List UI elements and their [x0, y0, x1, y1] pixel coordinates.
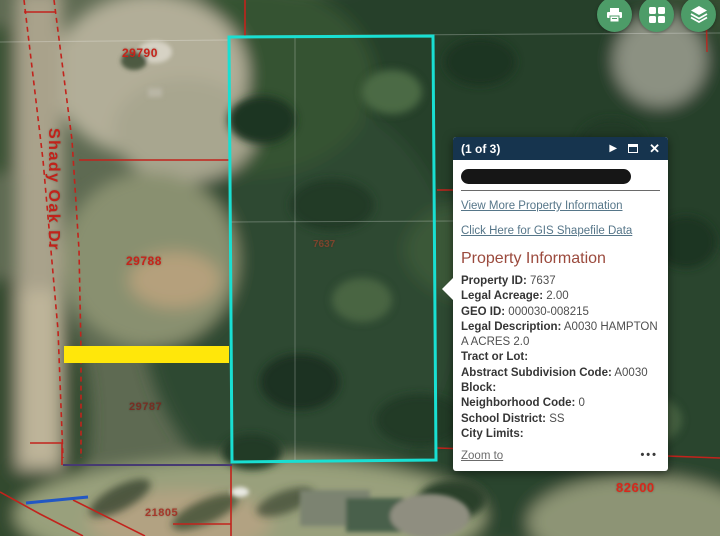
close-icon[interactable]: ✕ [649, 142, 660, 155]
property-field-row: Legal Description: A0030 HAMPTON A ACRES… [461, 320, 660, 351]
property-field-row: Neighborhood Code: 0 [461, 396, 660, 411]
property-field-row: Abstract Subdivision Code: A0030 [461, 366, 660, 381]
property-field-row: Property ID: 7637 [461, 274, 660, 289]
parcel-label: 29790 [122, 46, 158, 60]
property-fields: Property ID: 7637 Legal Acreage: 2.00 GE… [461, 274, 660, 442]
parcel-label: 29788 [126, 254, 162, 268]
popup-heading: Property Information [461, 250, 660, 268]
property-field-row: Legal Acreage: 2.00 [461, 289, 660, 304]
popup-footer: Zoom to ••• [453, 444, 668, 471]
map-canvas[interactable]: 29790 29788 29787 7637 21805 82600 Shady… [0, 0, 720, 536]
parcel-label: 7637 [313, 239, 335, 250]
redacted-title-bar [461, 169, 631, 184]
road-highlight [64, 346, 229, 363]
maximize-icon[interactable] [628, 144, 638, 153]
property-field-row: Tract or Lot: [461, 350, 660, 365]
parcel-label: 82600 [616, 480, 655, 495]
popup-pointer [442, 278, 453, 300]
popup-header: (1 of 3) ▶ ✕ [453, 137, 668, 160]
basemap-grid-icon [649, 7, 665, 23]
parcel-label: 29787 [129, 401, 162, 413]
property-field-row: Block: [461, 381, 660, 396]
parcel-label: 21805 [145, 507, 178, 519]
next-feature-icon[interactable]: ▶ [609, 144, 617, 154]
more-options-button[interactable]: ••• [640, 453, 658, 459]
property-field-row: City Limits: [461, 427, 660, 442]
printer-icon [606, 7, 623, 23]
layers-icon [690, 6, 708, 23]
popup-divider [461, 190, 660, 191]
street-label: Shady Oak Dr [44, 128, 62, 251]
popup-pager: (1 of 3) [461, 142, 609, 156]
property-field-row: GEO ID: 000030-008215 [461, 305, 660, 320]
view-more-link[interactable]: View More Property Information [461, 200, 660, 212]
property-field-row: School District: SS [461, 412, 660, 427]
property-popup: (1 of 3) ▶ ✕ View More Property Informat… [453, 137, 668, 471]
popup-body: View More Property Information Click Her… [453, 160, 668, 444]
gis-shapefile-link[interactable]: Click Here for GIS Shapefile Data [461, 225, 660, 237]
zoom-to-link[interactable]: Zoom to [461, 450, 503, 462]
